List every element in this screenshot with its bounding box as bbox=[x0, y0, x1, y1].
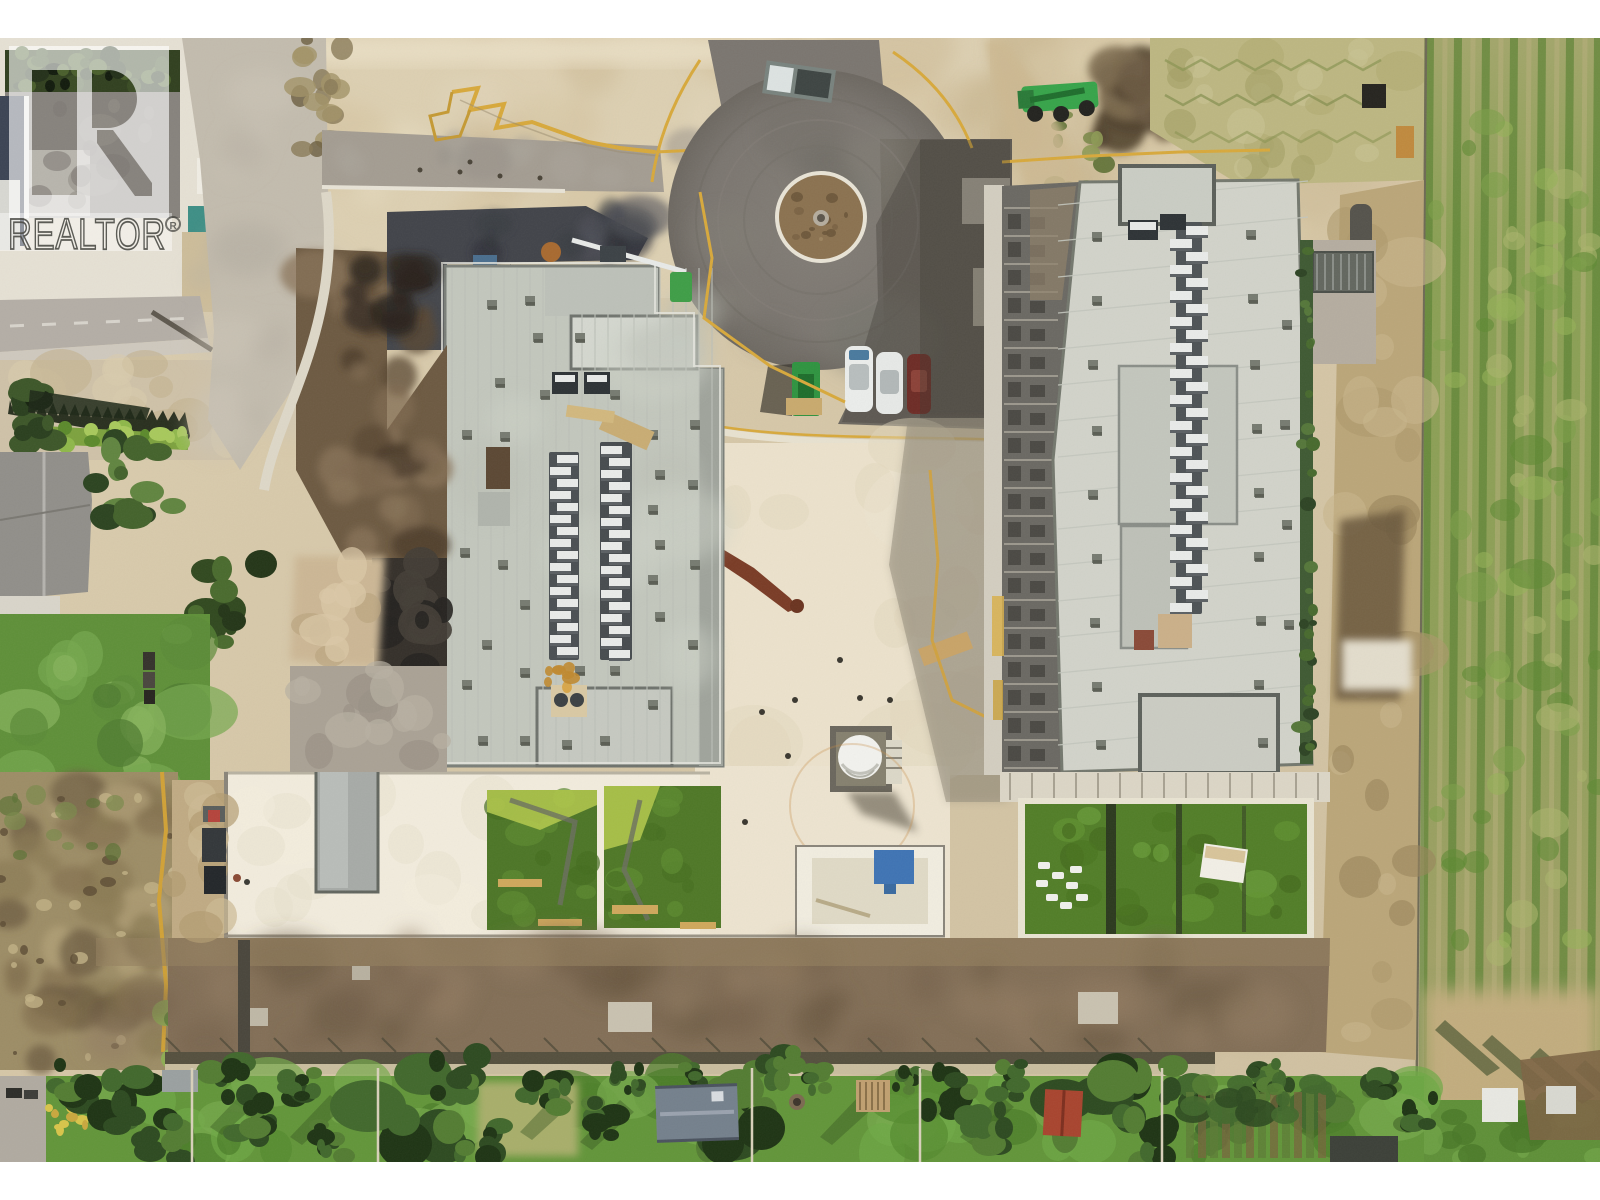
svg-text:REALTOR: REALTOR bbox=[8, 210, 166, 259]
svg-text:R: R bbox=[170, 221, 178, 232]
